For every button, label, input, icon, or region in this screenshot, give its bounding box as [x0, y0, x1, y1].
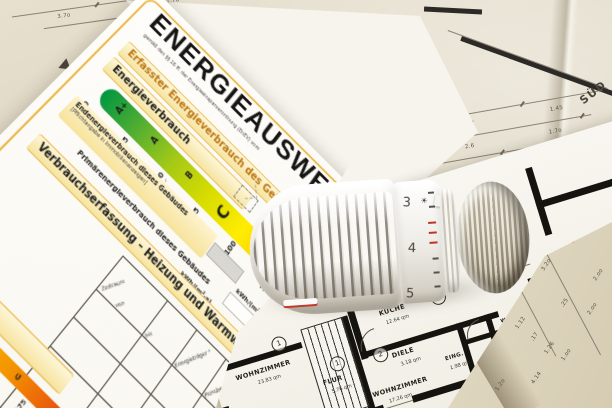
- grade-label-highlight: C: [213, 201, 234, 224]
- room-area: 23.83 qm: [257, 373, 282, 386]
- dim-text: 1.7o: [548, 127, 562, 135]
- grade-label: A: [149, 134, 160, 146]
- dim-text: 1.45: [549, 105, 563, 113]
- sun-icon: ☀: [420, 196, 428, 205]
- dial-number: 5: [406, 286, 415, 301]
- dial-tick: [434, 271, 440, 273]
- dim-text: 3.7o: [57, 12, 71, 20]
- dial-tick-red: [429, 241, 437, 244]
- dim-text: 1.oo: [560, 348, 572, 362]
- grade-label: A+: [114, 100, 130, 117]
- column-header: Zeitraum: [101, 279, 125, 293]
- radiator-thermostat-head: ☀ 3 4 5: [245, 166, 555, 337]
- dial-number: 4: [408, 241, 417, 256]
- plan-border-segment: [424, 6, 482, 14]
- dial-tick: [433, 257, 439, 259]
- dial-tick: [428, 191, 434, 193]
- dim-text: .25: [560, 297, 570, 308]
- grade-label: B: [184, 169, 195, 181]
- dial-number: 3: [402, 195, 411, 210]
- dial-tick-red: [429, 231, 437, 234]
- column-header: von: [115, 301, 126, 310]
- dim-text: .17: [530, 331, 540, 342]
- dim-text: 2.oo: [586, 302, 598, 316]
- grade-label: G: [13, 371, 24, 383]
- dim-text: 2.6: [465, 143, 476, 151]
- thermostat-body: [245, 178, 404, 318]
- photo-energy-certificate-scene: 5.77 3.7o 1.45 1.7o .75 .3o 1o.72 5.77 1…: [0, 0, 612, 408]
- column-header: bis: [145, 331, 153, 340]
- dial-tick: [435, 285, 441, 287]
- room-area: 3.18 qm: [400, 356, 422, 368]
- room-area: 1.98 qm: [449, 360, 471, 372]
- dial-tick-red: [428, 221, 436, 224]
- thermostat-ribs: [250, 191, 399, 303]
- dim-text: 2.oo: [592, 268, 604, 282]
